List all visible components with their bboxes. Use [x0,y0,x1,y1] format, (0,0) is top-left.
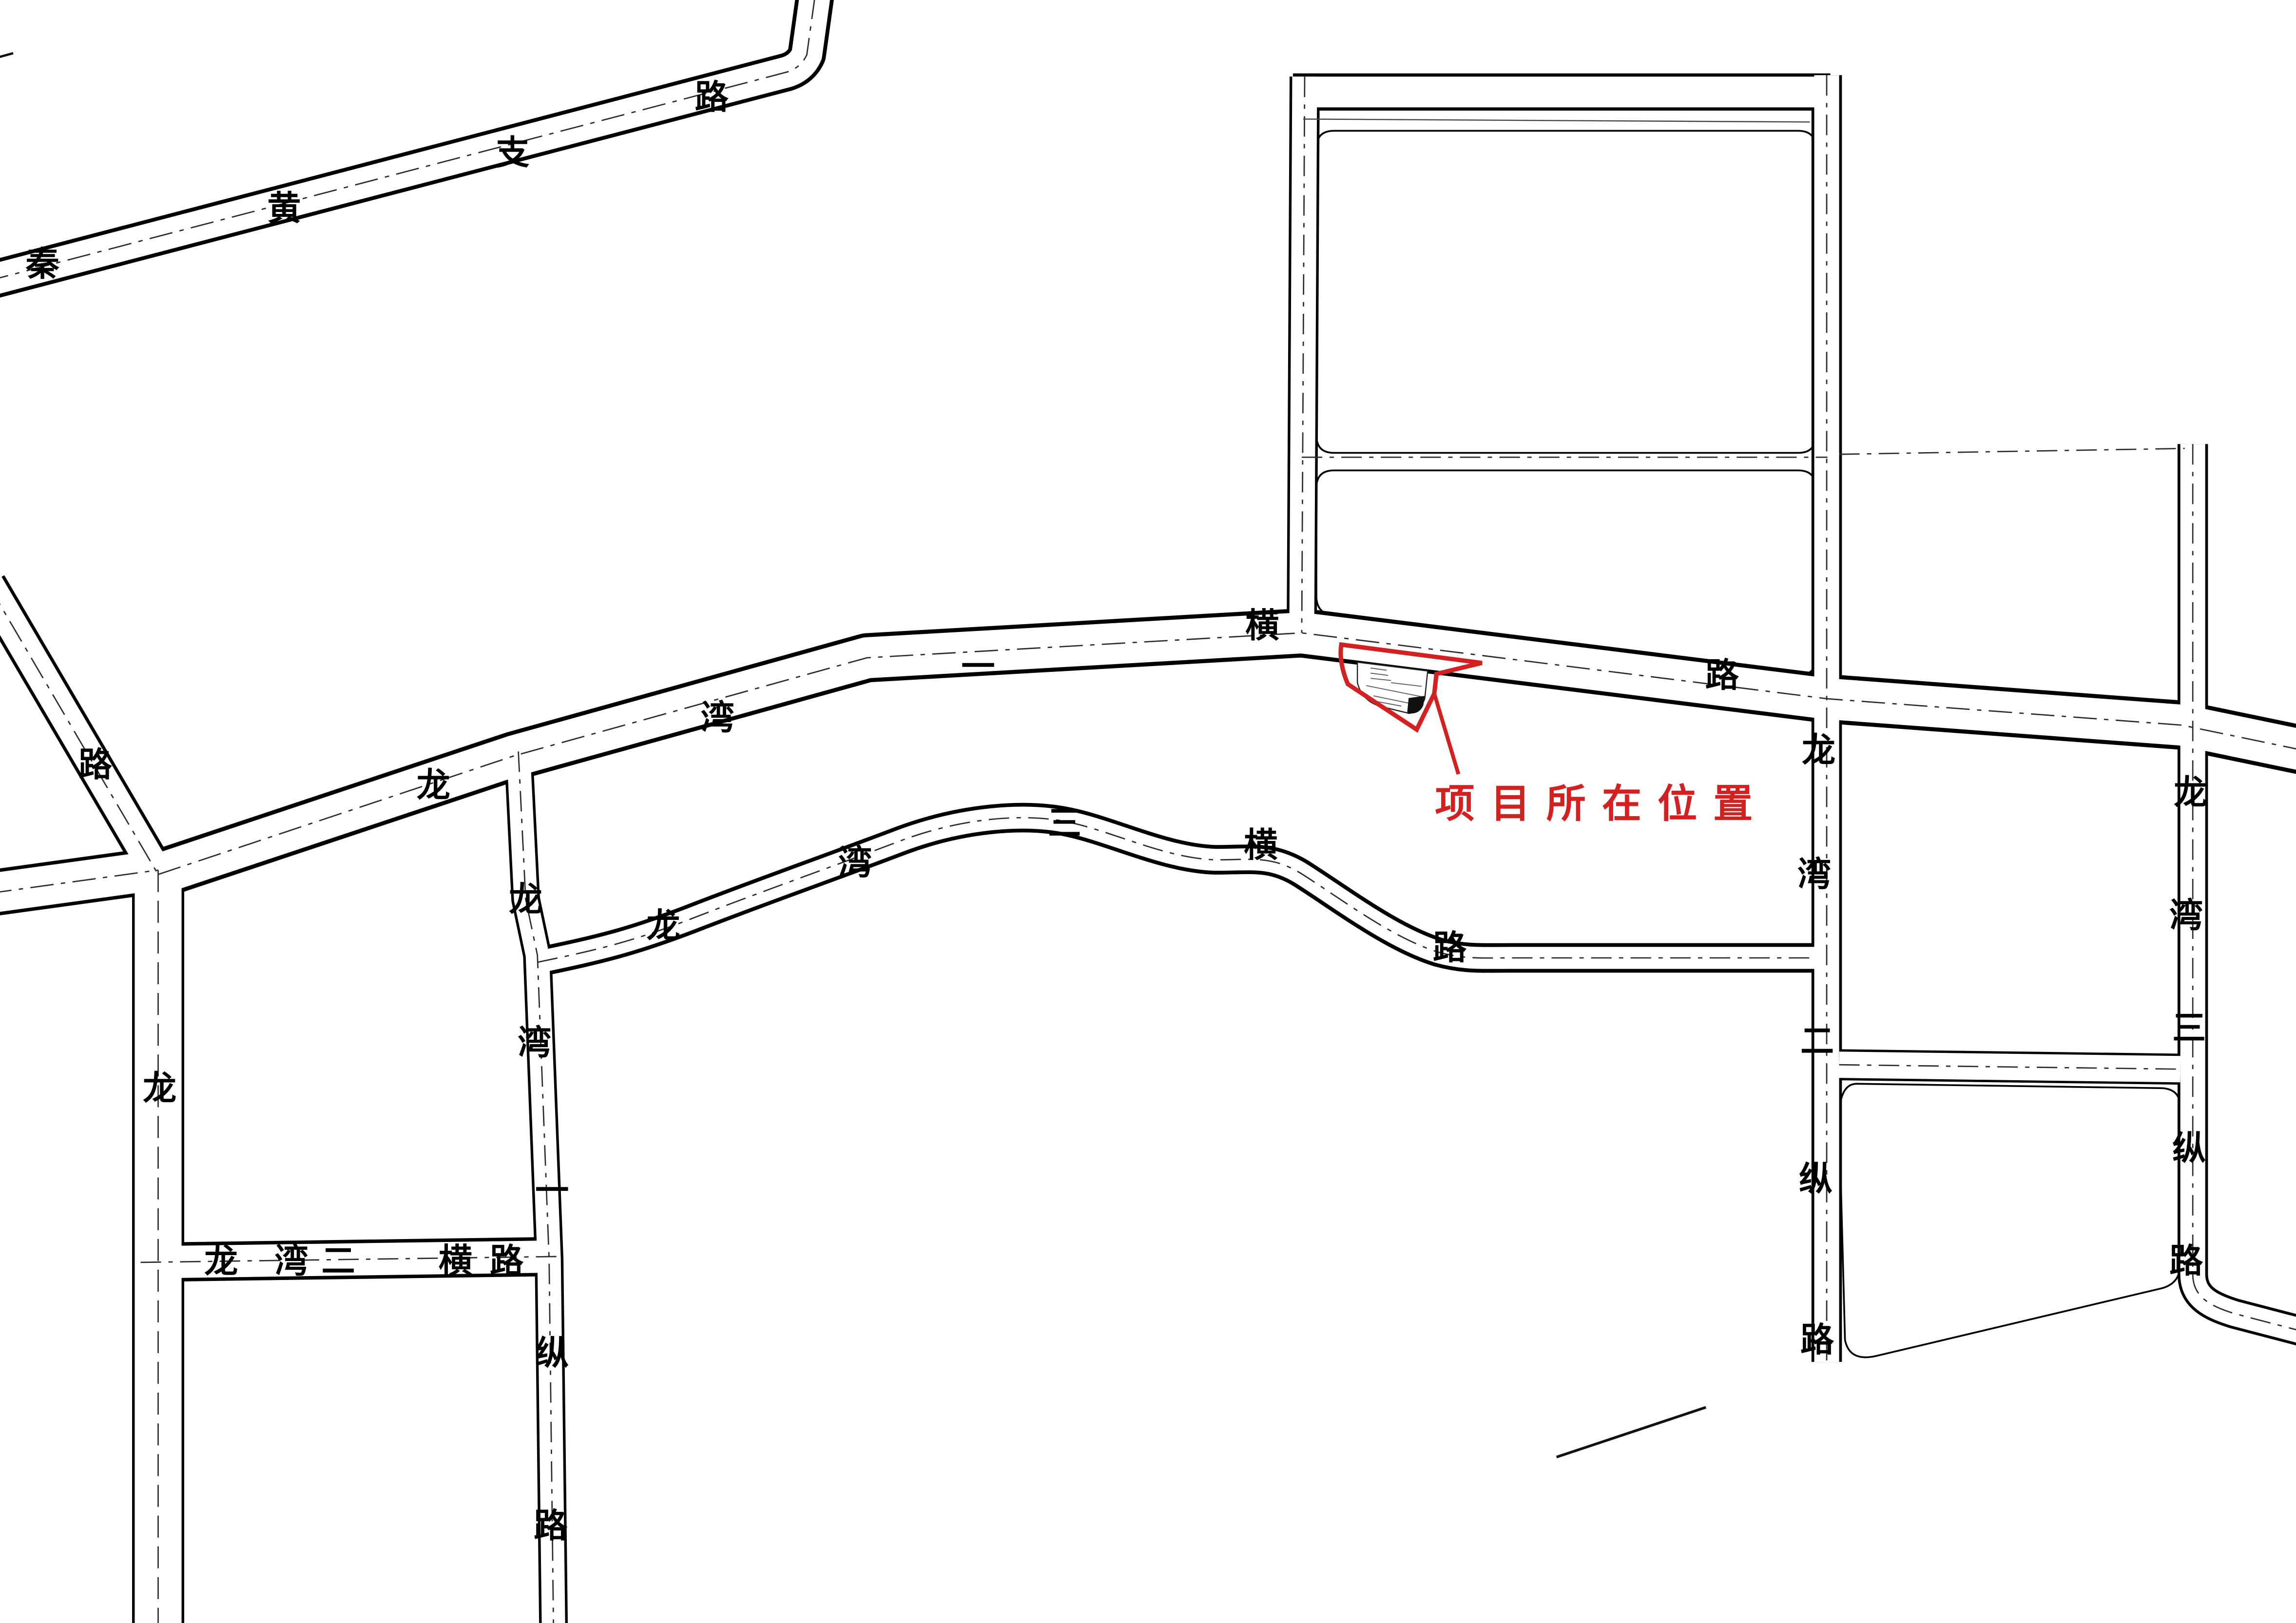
road-label-char-14: 纵 [535,1335,569,1372]
road-fill-longwan-3-zong-lu [2193,444,2296,1331]
road-label-char-0: 秦 [25,245,60,283]
road-label-char-10: 路 [1705,657,1739,694]
road-label-char-27: 湾 [1797,856,1831,893]
road-label-char-19: 横 [439,1242,472,1279]
road-label-char-35: 路 [2169,1242,2203,1279]
road-label-char-28: 二 [1800,1023,1834,1060]
road-surfaces [0,0,2296,1623]
map-canvas: 秦黄支路路龙龙湾一横路龙湾一纵路龙湾二横路龙湾三横路龙湾二纵路龙湾三纵路 项目所… [0,0,2296,1623]
gap-road-centerline-east [1839,448,2185,454]
topleft-edge-tick [0,53,13,57]
thin-boundary-line [1303,119,1810,122]
road-label-char-4: 路 [78,746,113,783]
road-label-char-8: 一 [961,648,995,686]
road-label-char-26: 龙 [1802,731,1835,769]
road-fill-northwest-road [0,585,158,875]
block-north [1316,131,1816,453]
road-casing-longwan-3-heng-lu [538,818,1816,962]
road-fill-qinhuang-zhi-lu [0,0,815,282]
road-label-char-16: 龙 [204,1242,238,1279]
road-label-char-20: 路 [490,1242,524,1279]
road-label-char-17: 湾 [274,1242,308,1279]
road-label-char-32: 湾 [2169,897,2203,934]
site-leader-line [1434,694,1459,774]
road-label-char-25: 路 [1433,929,1467,966]
road-label-char-2: 支 [496,134,529,172]
road-label-char-31: 龙 [2174,774,2207,811]
site-location-map: 秦黄支路路龙龙湾一横路龙湾一纵路龙湾二横路龙湾三横路龙湾二纵路龙湾三纵路 项目所… [0,0,2296,1623]
road-label-char-18: 二 [321,1242,355,1279]
road-label-char-6: 龙 [417,766,450,804]
road-casing-longwan-3-zong-lu [2193,444,2296,1331]
road-label-char-33: 三 [2172,1010,2206,1047]
road-label-char-22: 湾 [838,844,872,881]
road-label-char-15: 路 [534,1507,568,1545]
road-label-char-34: 纵 [2172,1129,2206,1167]
site-parcel-wedge [1407,696,1425,713]
southeast-diagonal-line [1557,1407,1706,1457]
road-label-char-24: 横 [1244,826,1277,864]
road-label-char-5: 龙 [143,1069,176,1107]
road-label-char-9: 横 [1245,607,1279,644]
road-centerline-longwan-3-zong-lu [2193,444,2296,1331]
road-label-char-3: 路 [695,78,729,116]
road-label-char-23: 三 [1048,804,1081,842]
road-label-char-7: 湾 [701,699,734,737]
road-label-char-13: 一 [535,1172,569,1209]
road-label-char-30: 路 [1800,1321,1834,1359]
road-label-char-21: 龙 [646,907,680,944]
city-blocks [1316,131,2180,1357]
road-label-char-1: 黄 [267,190,301,227]
road-label-char-11: 龙 [509,880,542,918]
road-label-char-12: 湾 [518,1024,551,1062]
road-fill-longwan-1-heng-lu [158,633,2296,875]
road-label-char-29: 纵 [1799,1160,1833,1198]
block-southeast [1839,1084,2180,1357]
project-location-label: 项目所在位置 [1435,783,1769,826]
